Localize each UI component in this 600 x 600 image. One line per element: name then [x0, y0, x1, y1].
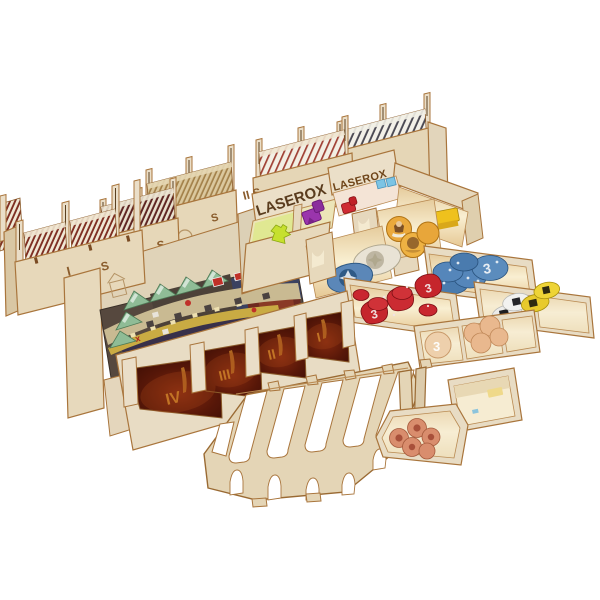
svg-text:3: 3 — [433, 339, 440, 354]
